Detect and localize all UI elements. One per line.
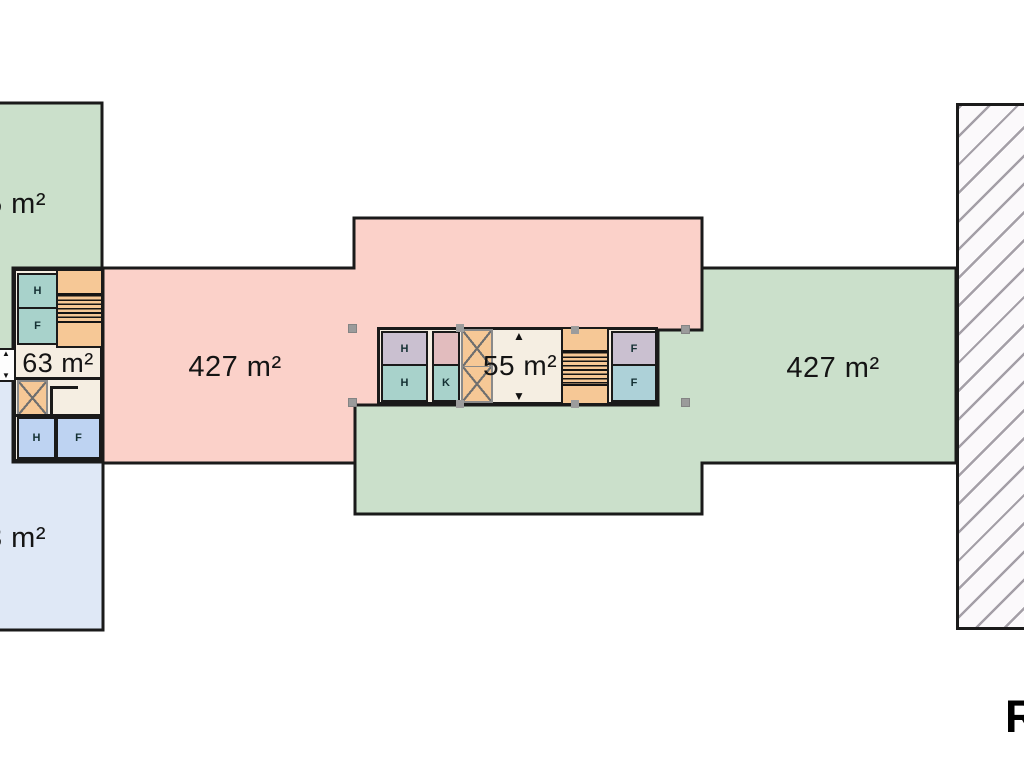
room-label: F xyxy=(631,377,638,389)
up-arrow-icon: ▲ xyxy=(510,329,528,343)
floor-plan-canvas: H F 63 m² ▲ ▼ H F H H K ▲ ▼ 55 m² F xyxy=(0,0,1024,768)
top-left-apartment-label: 5 m² xyxy=(0,188,46,221)
wall-mark xyxy=(571,326,579,334)
center-stair-treads xyxy=(563,350,607,386)
selection-handle-bottom-right[interactable] xyxy=(681,398,690,407)
page-title-fragment: R xyxy=(1005,691,1024,743)
wall-mark xyxy=(571,400,579,408)
left-core-room-f-top: F xyxy=(17,307,58,345)
left-core-room-f-bottom: F xyxy=(56,417,101,459)
room-label: F xyxy=(34,320,41,332)
room-label: H xyxy=(33,432,41,444)
center-room-f-top: F xyxy=(611,331,657,366)
center-room-k: K xyxy=(432,364,460,402)
center-room-h-bottom: H xyxy=(381,364,428,402)
wall-mark xyxy=(456,324,464,332)
room-label: F xyxy=(75,432,82,444)
room-label: K xyxy=(442,377,450,389)
selection-handle-bottom-left[interactable] xyxy=(348,398,357,407)
room-label: H xyxy=(401,343,409,355)
hatched-area xyxy=(956,103,1024,630)
center-room-unlabeled xyxy=(432,331,460,366)
selection-handle-top-left[interactable] xyxy=(348,324,357,333)
left-core-elevator-shaft xyxy=(17,380,48,416)
room-label: F xyxy=(631,343,638,355)
left-core-wall xyxy=(50,386,53,416)
center-room-f-bottom: F xyxy=(611,364,657,402)
room-label: H xyxy=(401,377,409,389)
left-core-room-h-top: H xyxy=(17,273,58,309)
pink-wing-label: 427 m² xyxy=(160,350,310,384)
green-wing-label: 427 m² xyxy=(758,351,908,385)
center-room-h-top: H xyxy=(381,331,428,366)
down-arrow-icon: ▼ xyxy=(2,372,10,380)
elevator-x-icon xyxy=(19,382,46,414)
down-arrow-icon: ▼ xyxy=(510,389,528,403)
left-core-wall xyxy=(50,386,78,389)
left-core-stair-treads xyxy=(58,293,101,323)
left-core-direction-box: ▲ ▼ xyxy=(0,348,16,382)
wall-mark xyxy=(456,400,464,408)
center-core-area-label: 55 m² xyxy=(468,351,572,381)
left-core-room-h-bottom: H xyxy=(17,417,56,459)
left-core-area-label: 63 m² xyxy=(14,349,102,378)
room-label: H xyxy=(34,285,42,297)
selection-handle-top-right[interactable] xyxy=(681,325,690,334)
up-arrow-icon: ▲ xyxy=(2,350,10,358)
bottom-left-apartment-label: 3 m² xyxy=(0,522,46,555)
